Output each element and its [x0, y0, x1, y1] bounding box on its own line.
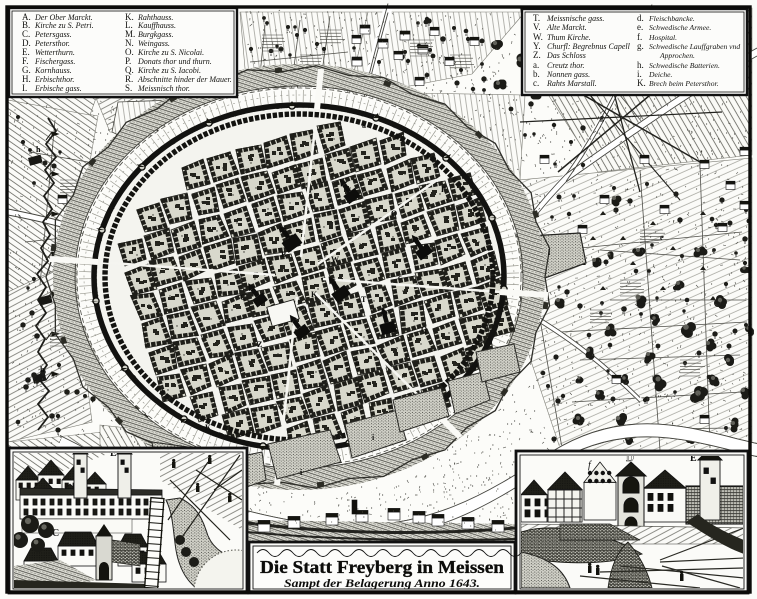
svg-text:Sampt der Belagerung Anno 1643: Sampt der Belagerung Anno 1643. [284, 578, 480, 590]
svg-text:K.: K. [637, 78, 646, 88]
svg-text:I.: I. [22, 83, 27, 93]
svg-text:K: K [311, 290, 318, 299]
svg-text:V.: V. [533, 22, 541, 32]
svg-text:e.: e. [637, 22, 643, 32]
svg-text:h: h [36, 145, 41, 154]
svg-text:Die Statt Freyberg in Meissen: Die Statt Freyberg in Meissen [260, 557, 504, 577]
svg-text:Meissnisch thor.: Meissnisch thor. [137, 84, 190, 93]
svg-text:Z.: Z. [533, 50, 541, 60]
svg-text:Fischergass.: Fischergass. [34, 57, 75, 66]
svg-text:Schwedische Armee.: Schwedische Armee. [649, 23, 711, 32]
svg-text:Schwedische Lauffgraben vnd: Schwedische Lauffgraben vnd [649, 42, 740, 51]
svg-text:Burgkgass.: Burgkgass. [138, 30, 173, 39]
svg-text:B: B [281, 250, 287, 259]
svg-text:Kirche zu S. Nicolai.: Kirche zu S. Nicolai. [137, 48, 204, 57]
svg-text:Thum Kirche.: Thum Kirche. [547, 33, 591, 42]
svg-text:Weingass.: Weingass. [138, 39, 170, 48]
svg-text:T: T [361, 295, 367, 304]
svg-text:Donats thor und thurn.: Donats thor und thurn. [137, 57, 212, 66]
svg-text:Petersthor.: Petersthor. [34, 39, 70, 48]
svg-text:c.: c. [533, 78, 539, 88]
svg-text:Kirche zu S. Petri.: Kirche zu S. Petri. [34, 21, 94, 30]
svg-text:C: C [240, 293, 246, 302]
svg-text:e: e [660, 233, 664, 242]
svg-text:Fleischbancke.: Fleischbancke. [648, 14, 695, 23]
svg-text:g.: g. [637, 41, 644, 51]
svg-text:Brech beim Petersthor.: Brech beim Petersthor. [649, 79, 719, 88]
svg-text:A: A [302, 305, 308, 314]
svg-text:S.: S. [125, 83, 132, 93]
svg-text:W: W [331, 255, 339, 264]
svg-text:h: h [40, 365, 45, 374]
svg-text:Abschnitte hinder der Mauer.: Abschnitte hinder der Mauer. [137, 75, 232, 84]
svg-text:Z: Z [257, 340, 262, 349]
svg-text:Kirche zu S. Iacobi.: Kirche zu S. Iacobi. [137, 66, 201, 75]
svg-text:a: a [362, 121, 366, 130]
svg-text:O: O [391, 209, 397, 218]
svg-text:c: c [398, 273, 402, 282]
svg-text:Wetterthurn.: Wetterthurn. [35, 48, 75, 57]
svg-text:Das Schloss: Das Schloss [546, 51, 586, 60]
svg-text:Schwedische Batterien.: Schwedische Batterien. [649, 61, 720, 70]
svg-text:b: b [355, 358, 360, 367]
svg-text:Erbische gass.: Erbische gass. [34, 84, 82, 93]
svg-text:Kornhauss.: Kornhauss. [34, 66, 72, 75]
svg-text:Q: Q [421, 325, 427, 334]
svg-text:Creutz thor.: Creutz thor. [547, 61, 585, 70]
svg-text:Meissnische gass.: Meissnische gass. [546, 14, 604, 23]
svg-text:Alte Marckt.: Alte Marckt. [546, 23, 587, 32]
svg-text:g: g [600, 113, 604, 122]
svg-text:Hospital.: Hospital. [648, 33, 677, 42]
svg-text:Erbischthor.: Erbischthor. [34, 75, 74, 84]
svg-text:Kauffhauss.: Kauffhauss. [137, 21, 176, 30]
svg-text:Petersgass.: Petersgass. [34, 30, 72, 39]
svg-text:Deiche.: Deiche. [648, 70, 673, 79]
svg-text:Nonnen gass.: Nonnen gass. [546, 70, 590, 79]
svg-text:Churfl: Begrebnus Capell: Churfl: Begrebnus Capell [547, 42, 631, 51]
svg-text:Rahts Marstall.: Rahts Marstall. [546, 79, 597, 88]
svg-text:V: V [269, 385, 275, 394]
svg-text:P: P [441, 185, 446, 194]
svg-text:Approchen.: Approchen. [659, 51, 695, 60]
svg-text:K: K [205, 423, 212, 432]
